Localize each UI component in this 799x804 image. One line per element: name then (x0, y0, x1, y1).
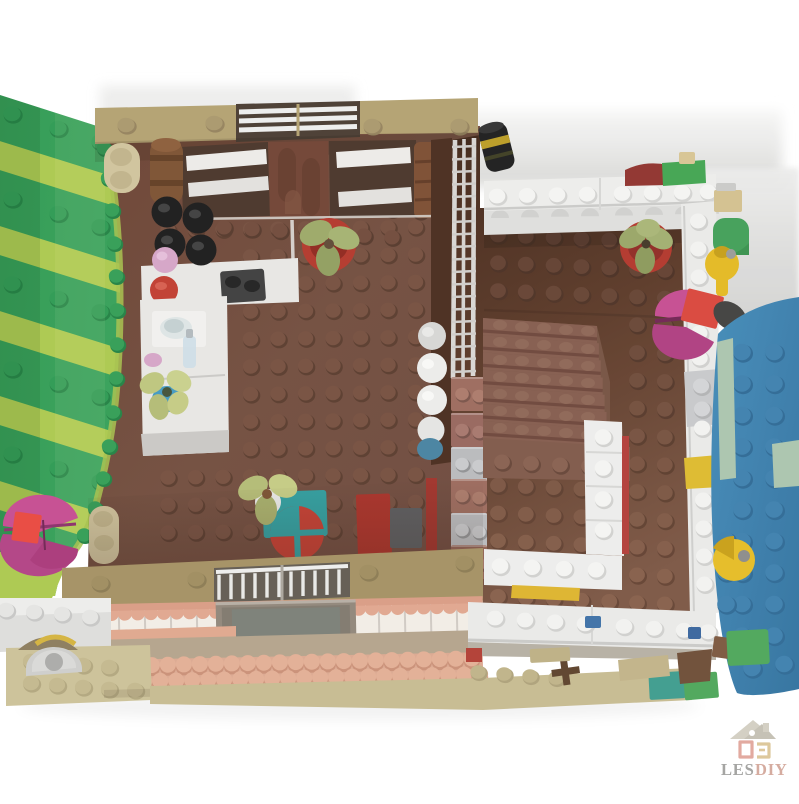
svg-text:LES: LES (721, 760, 755, 779)
svg-text:DIY: DIY (755, 760, 788, 779)
